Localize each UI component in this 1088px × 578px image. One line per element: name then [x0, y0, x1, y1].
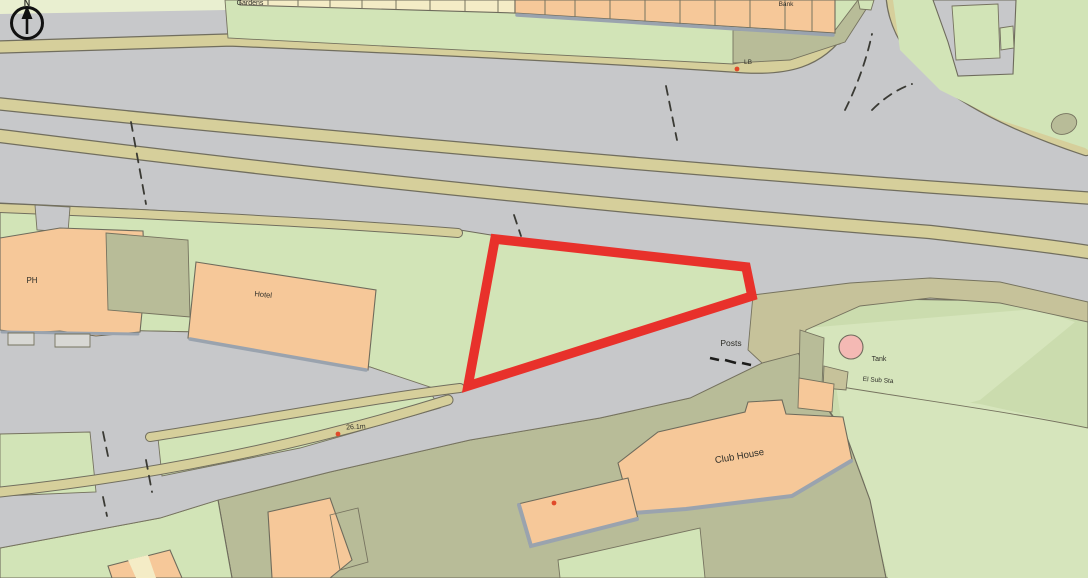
outbuilding-orange-c	[798, 378, 834, 412]
map-screenshot: N Gardens Bank LB PH Hotel 26.1m Posts T…	[0, 0, 1088, 578]
label-ph: PH	[26, 276, 37, 285]
label-tank: Tank	[872, 356, 887, 363]
label-gardens-partial: Gardens	[237, 0, 264, 7]
label-posts: Posts	[720, 338, 741, 348]
ph-outbuilding-a	[8, 333, 34, 345]
location-plan-map: N Gardens Bank LB PH Hotel 26.1m Posts T…	[0, 0, 1088, 578]
label-spot-height: 26.1m	[346, 423, 366, 431]
label-hotel: Hotel	[254, 289, 273, 300]
footprint-inner-court-small	[1000, 26, 1014, 50]
red-survey-dot-2	[336, 432, 341, 437]
green-patch-terrace-end	[858, 0, 874, 10]
north-label: N	[24, 0, 31, 8]
ph-outbuilding-b	[55, 334, 90, 347]
red-survey-dot-3	[552, 501, 557, 506]
red-survey-dot-1	[735, 67, 740, 72]
label-lb: LB	[744, 59, 752, 66]
tank-symbol	[839, 335, 863, 359]
label-bank-partial: Bank	[779, 1, 795, 8]
olive-patch-courtyard	[106, 233, 190, 317]
footprint-inner-court	[952, 4, 1000, 60]
